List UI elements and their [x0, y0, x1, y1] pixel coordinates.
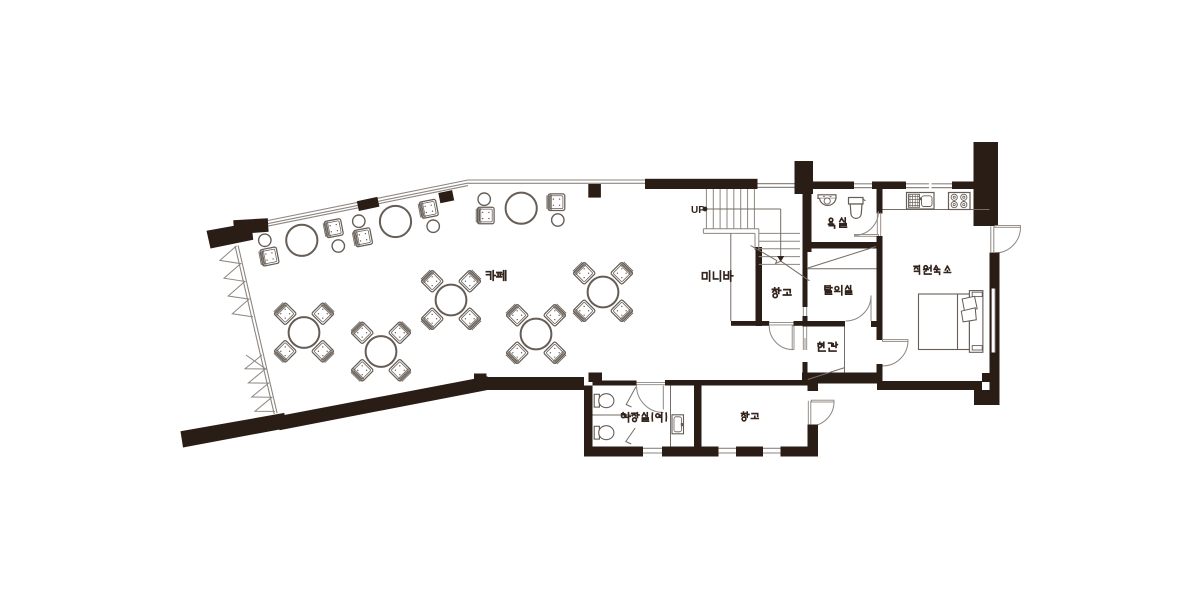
- svg-text:UP: UP: [691, 205, 705, 216]
